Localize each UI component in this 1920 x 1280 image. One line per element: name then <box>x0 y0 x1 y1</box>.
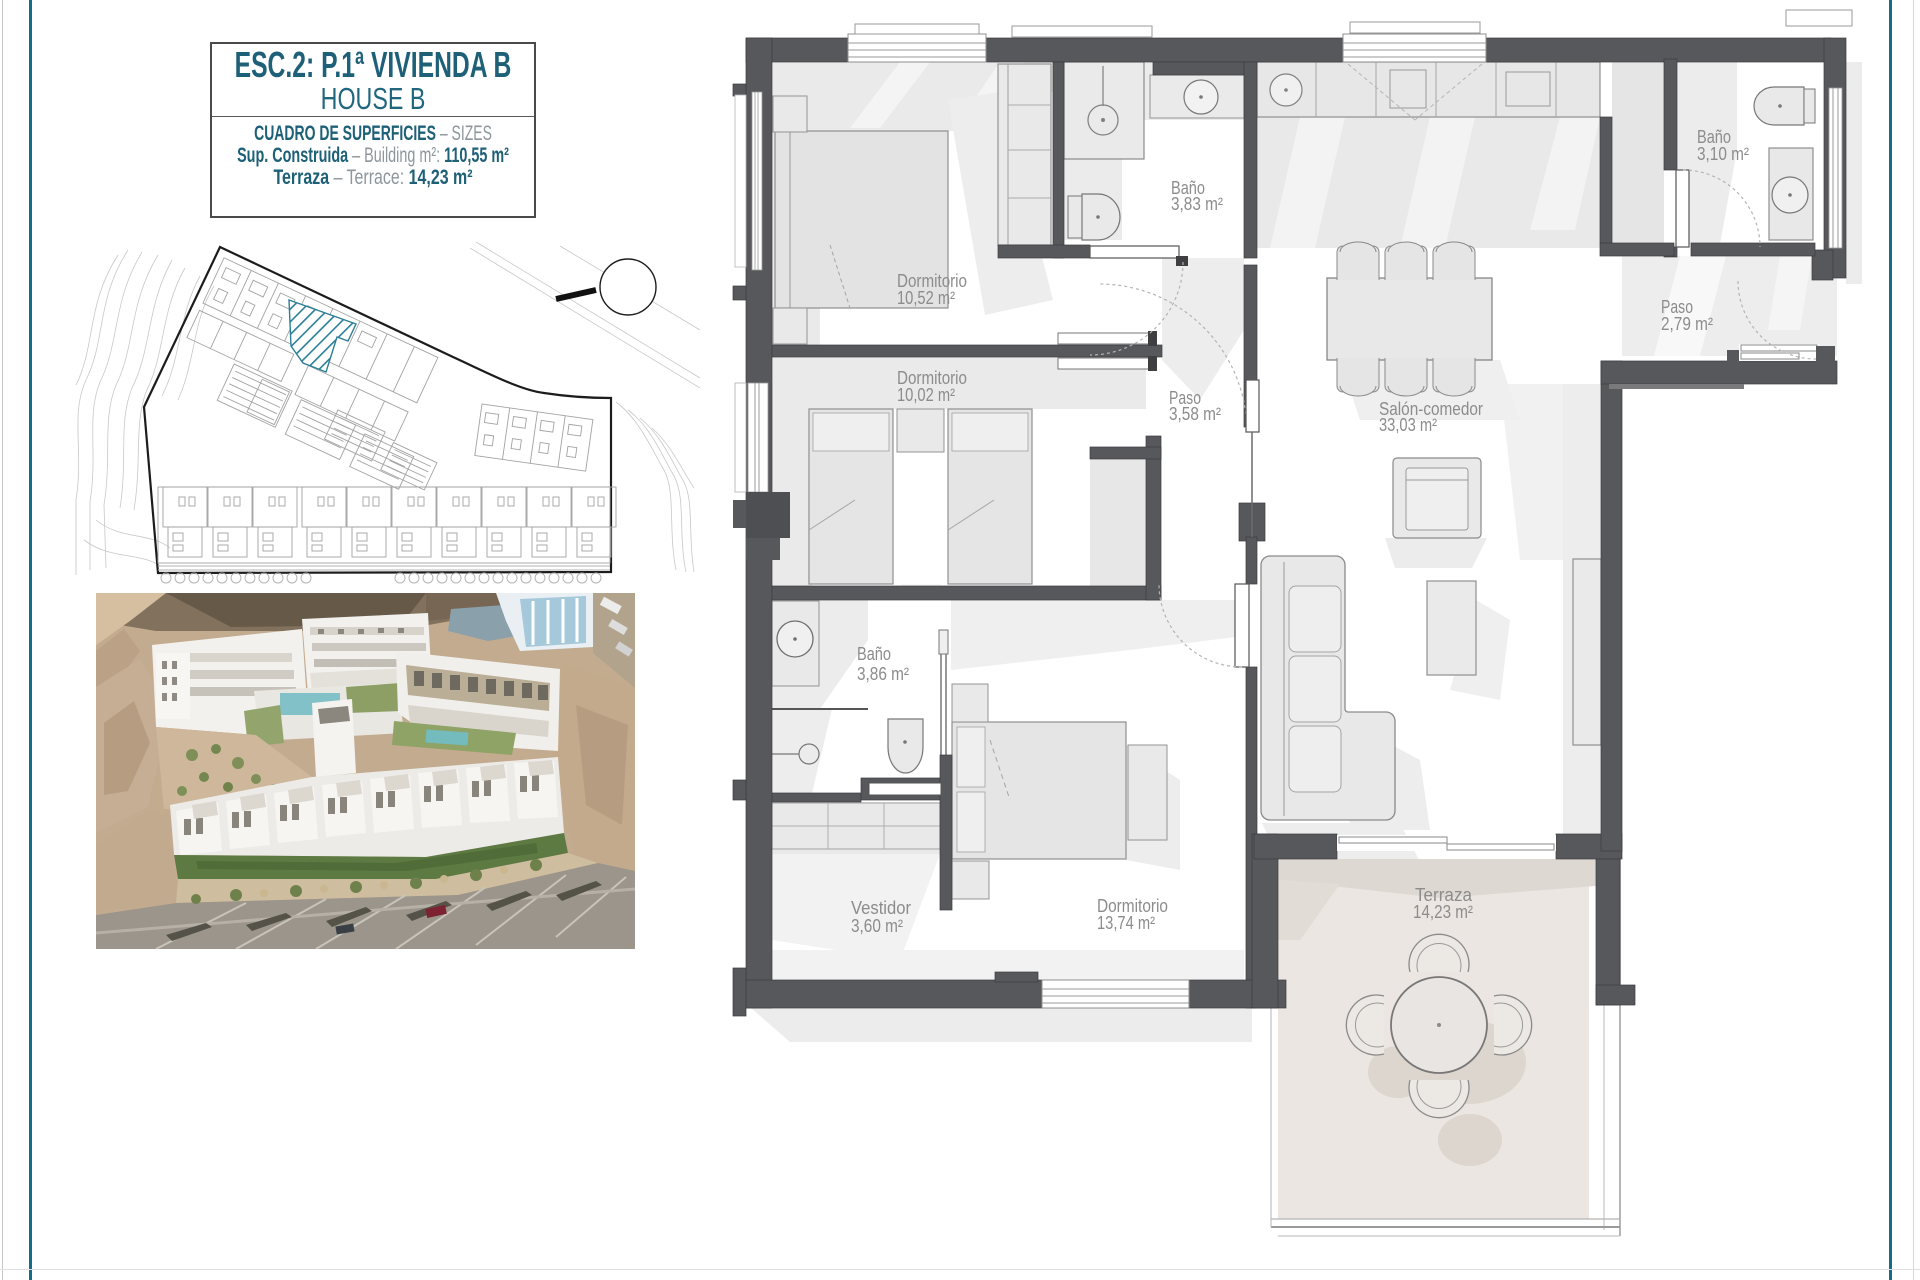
svg-text:3,60 m²: 3,60 m² <box>851 916 903 936</box>
svg-text:3,86 m²: 3,86 m² <box>857 664 909 684</box>
svg-text:3,83 m²: 3,83 m² <box>1171 194 1223 214</box>
svg-text:14,23 m²: 14,23 m² <box>1413 902 1473 922</box>
svg-text:3,10 m²: 3,10 m² <box>1697 144 1749 164</box>
svg-text:13,74 m²: 13,74 m² <box>1097 913 1155 933</box>
svg-text:Baño: Baño <box>857 644 891 664</box>
svg-text:10,02 m²: 10,02 m² <box>897 385 955 405</box>
svg-text:Vestidor: Vestidor <box>851 898 911 918</box>
svg-text:3,58 m²: 3,58 m² <box>1169 404 1221 424</box>
svg-text:33,03 m²: 33,03 m² <box>1379 415 1437 435</box>
svg-text:10,52 m²: 10,52 m² <box>897 288 955 308</box>
svg-text:2,79 m²: 2,79 m² <box>1661 314 1713 334</box>
